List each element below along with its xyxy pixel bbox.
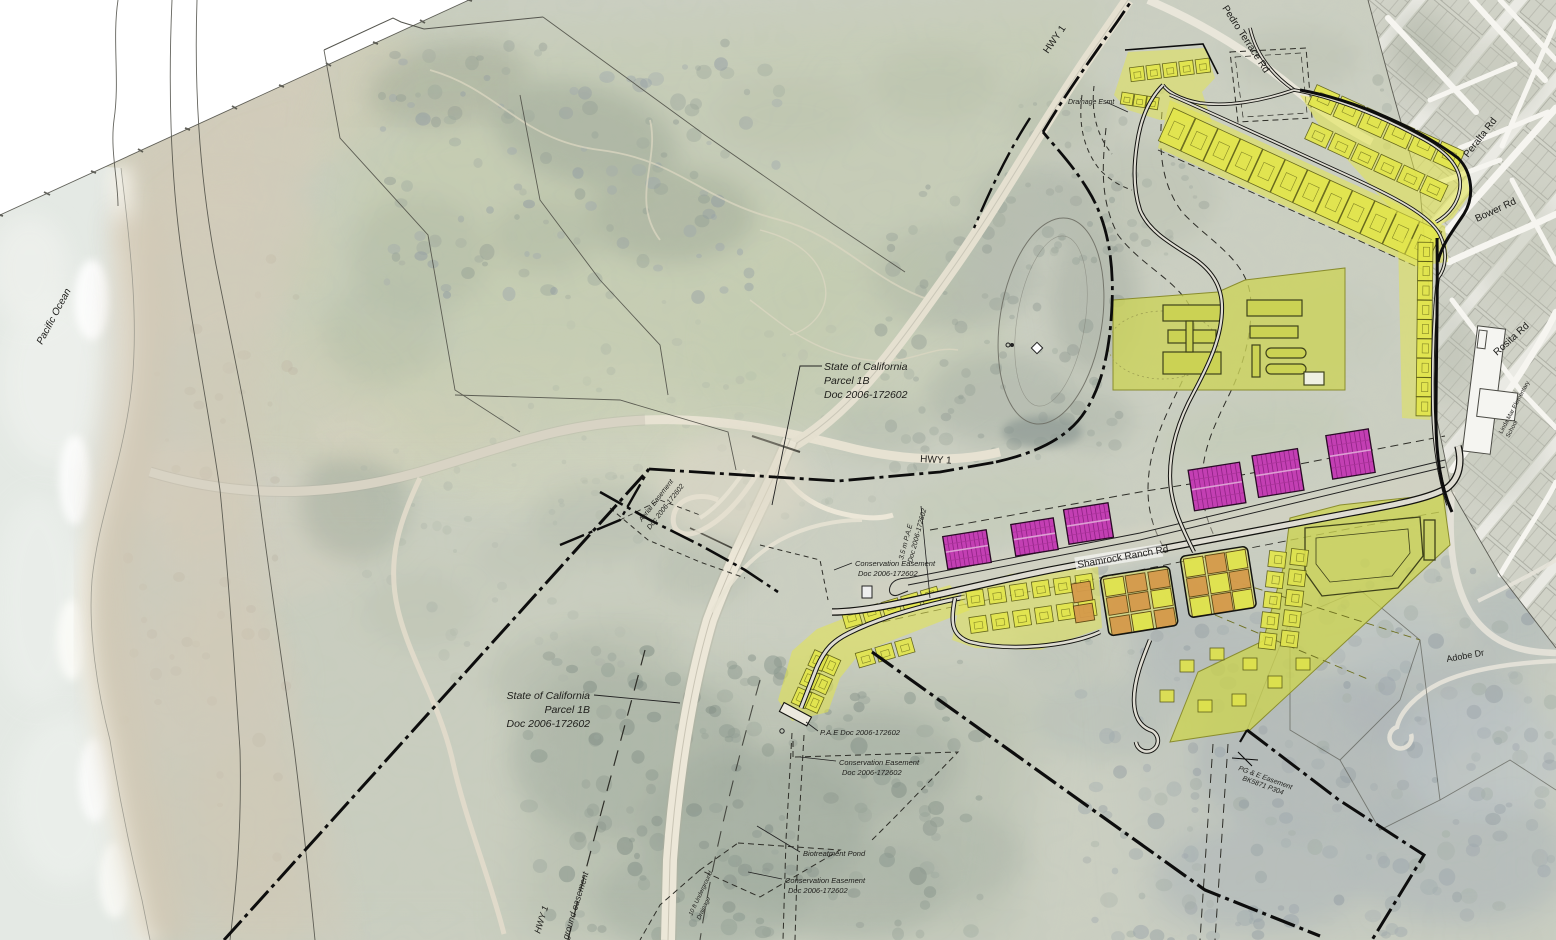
svg-text:Biotreatment Pond: Biotreatment Pond (803, 849, 866, 858)
svg-text:Doc 2006-172602: Doc 2006-172602 (858, 569, 918, 578)
svg-text:Doc 2006-172602: Doc 2006-172602 (842, 768, 902, 777)
svg-text:Doc 2006-172602: Doc 2006-172602 (507, 718, 591, 730)
svg-text:Parcel 1B: Parcel 1B (824, 375, 870, 387)
svg-text:Drainage Esmt: Drainage Esmt (1068, 99, 1115, 106)
svg-text:State of California: State of California (507, 690, 591, 702)
svg-text:State of California: State of California (824, 361, 908, 373)
svg-text:Parcel 1B: Parcel 1B (544, 704, 590, 716)
svg-text:Conservation Easement: Conservation Easement (785, 876, 866, 885)
svg-text:Conservation Easement: Conservation Easement (855, 559, 936, 568)
svg-text:P.A.E Doc 2006-172602: P.A.E Doc 2006-172602 (820, 728, 901, 737)
svg-text:HWY 1: HWY 1 (920, 454, 952, 467)
svg-text:Conservation Easement: Conservation Easement (839, 758, 920, 767)
svg-text:Doc 2006-172602: Doc 2006-172602 (824, 389, 908, 401)
svg-text:Doc 2006-172602: Doc 2006-172602 (788, 886, 848, 895)
